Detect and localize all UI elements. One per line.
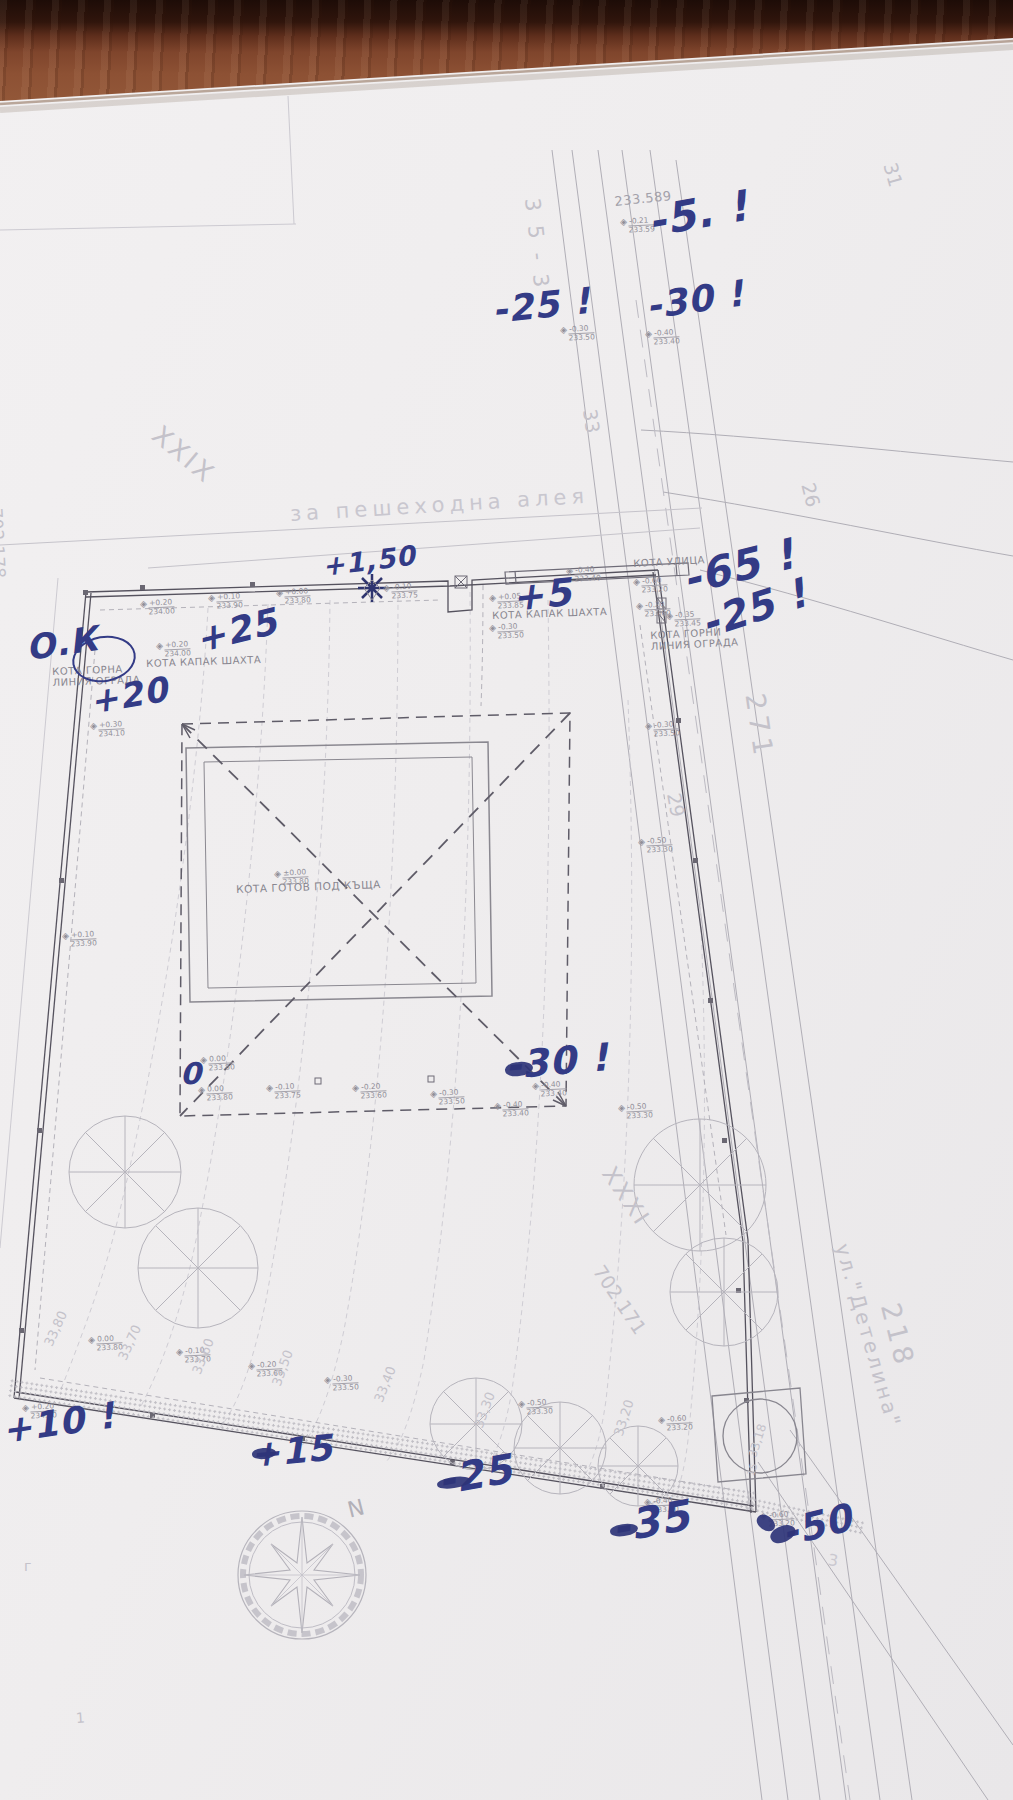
elevation-marker: ◈ -0.60 233.20 [658, 1414, 693, 1433]
shaft-symbols [315, 576, 666, 1084]
elevation-marker: ◈ -0.40 233.40 [494, 1100, 529, 1119]
elevation-marker: ◈ -0.30 233.50 [645, 720, 680, 739]
elevation-marker: ◈ -0.30 233.50 [324, 1374, 359, 1393]
absolute-elevation: 233.50 [438, 1097, 465, 1106]
benchmark-diamond-icon: ◈ [658, 1416, 665, 1425]
paper-edge [0, 41, 1013, 104]
absolute-elevation: 233.40 [574, 574, 601, 583]
faint-label: 29 [663, 791, 689, 819]
elevation-marker: ◈ -0.60 233.20 [633, 576, 668, 595]
absolute-elevation: 233.40 [653, 337, 680, 346]
ink-star-benchmark [358, 574, 386, 602]
absolute-elevation: 233.20 [666, 1423, 693, 1432]
benchmark-diamond-icon: ◈ [430, 1090, 437, 1099]
elevation-marker: ◈ -0.50 233.30 [638, 836, 673, 855]
elevation-marker: ◈ -0.50 233.30 [618, 1102, 653, 1121]
elevation-marker: ◈ -0.30 233.50 [560, 324, 595, 343]
benchmark-diamond-icon: ◈ [638, 838, 645, 847]
elevation-marker: ◈ +0.10 233.90 [62, 930, 97, 949]
benchmark-diamond-icon: ◈ [324, 1376, 331, 1385]
street-centerline [636, 300, 850, 1800]
absolute-elevation: 233.30 [626, 1111, 653, 1120]
absolute-elevation: 233.80 [206, 1093, 233, 1102]
benchmark-diamond-icon: ◈ [620, 218, 627, 227]
benchmark-diamond-icon: ◈ [276, 589, 283, 598]
benchmark-diamond-icon: ◈ [90, 722, 97, 731]
benchmark-diamond-icon: ◈ [383, 584, 390, 593]
benchmark-diamond-icon: ◈ [266, 1084, 273, 1093]
benchmark-diamond-icon: ◈ [274, 870, 281, 879]
elevation-marker: ◈ +0.20 234.00 [140, 598, 175, 617]
paper-edge-shadow [0, 47, 1013, 110]
absolute-elevation: 233.30 [526, 1407, 553, 1416]
benchmark-diamond-icon: ◈ [489, 624, 496, 633]
absolute-elevation: 233.50 [332, 1383, 359, 1392]
faint-label: 33 [579, 407, 604, 434]
elevation-marker: ◈ -0.30 233.50 [489, 622, 524, 641]
absolute-elevation: 233.30 [646, 845, 673, 854]
absolute-elevation: 233.80 [282, 877, 309, 886]
absolute-elevation: 234.00 [164, 649, 191, 658]
elevation-marker: ◈ ±0.00 233.80 [274, 868, 309, 887]
elevation-marker: ◈ -0.10 233.75 [383, 582, 418, 601]
benchmark-diamond-icon: ◈ [518, 1400, 525, 1409]
benchmark-diamond-icon: ◈ [618, 1104, 625, 1113]
elevation-marker: ◈ -0.40 233.40 [566, 565, 601, 584]
benchmark-diamond-icon: ◈ [156, 642, 163, 651]
absolute-elevation: 233.80 [284, 596, 311, 605]
photo-of-site-plan: 233.589 КОТА УЛИЦА КОТА КАПАК ШАХТА КОТА… [0, 0, 1013, 1800]
elevation-marker: ◈ +0.30 234.10 [90, 720, 125, 739]
street-lines [552, 150, 1013, 1800]
absolute-elevation: 233.50 [653, 729, 680, 738]
benchmark-diamond-icon: ◈ [88, 1336, 95, 1345]
benchmark-diamond-icon: ◈ [645, 722, 652, 731]
absolute-elevation: 233.50 [497, 631, 524, 640]
benchmark-diamond-icon: ◈ [208, 594, 215, 603]
absolute-elevation: 233.75 [274, 1091, 301, 1100]
absolute-elevation: 233.45 [674, 619, 701, 628]
absolute-elevation: 233.50 [568, 333, 595, 342]
elevation-marker: ◈ -0.50 233.30 [518, 1398, 553, 1417]
absolute-elevation: 233.80 [208, 1063, 235, 1072]
building-footprint [186, 742, 492, 1002]
elevation-marker: ◈ -0.40 233.40 [645, 328, 680, 347]
benchmark-diamond-icon: ◈ [666, 612, 673, 621]
absolute-elevation: 233.40 [502, 1109, 529, 1118]
handwritten-note: 0 [180, 1056, 202, 1091]
absolute-elevation: 233.40 [540, 1089, 567, 1098]
benchmark-diamond-icon: ◈ [140, 600, 147, 609]
elevation-marker: ◈ -0.10 233.75 [266, 1082, 301, 1101]
absolute-elevation: 234.00 [148, 607, 175, 616]
compass-rose [238, 1511, 366, 1639]
absolute-elevation: 233.60 [360, 1091, 387, 1100]
absolute-elevation: 233.75 [391, 591, 418, 600]
benchmark-diamond-icon: ◈ [636, 602, 643, 611]
elevation-marker: ◈ 0.00 233.80 [200, 1054, 235, 1073]
elevation-marker: ◈ -0.35 233.45 [666, 610, 701, 629]
benchmark-diamond-icon: ◈ [248, 1362, 255, 1371]
elevation-marker: ◈ -0.30 233.50 [430, 1088, 465, 1107]
benchmark-diamond-icon: ◈ [176, 1348, 183, 1357]
absolute-elevation: 234.10 [98, 729, 125, 738]
absolute-elevation: 233.90 [70, 939, 97, 948]
benchmark-diamond-icon: ◈ [489, 594, 496, 603]
faint-label: г [24, 1558, 31, 1574]
elevation-marker: ◈ -0.20 233.60 [352, 1082, 387, 1101]
benchmark-diamond-icon: ◈ [494, 1102, 501, 1111]
elevation-marker: ◈ 0.00 233.80 [198, 1084, 233, 1103]
absolute-elevation: 233.20 [641, 585, 668, 594]
benchmark-diamond-icon: ◈ [352, 1084, 359, 1093]
benchmark-diamond-icon: ◈ [62, 932, 69, 941]
benchmark-diamond-icon: ◈ [633, 578, 640, 587]
elevation-marker: ◈ +0.20 234.00 [156, 640, 191, 659]
elevation-marker: ◈ +0.00 233.80 [276, 587, 311, 606]
benchmark-diamond-icon: ◈ [645, 330, 652, 339]
faint-label: 1 [75, 1709, 85, 1726]
handwritten-note: +5 [510, 570, 575, 620]
site-plan-drawing: 233.589 КОТА УЛИЦА КОТА КАПАК ШАХТА КОТА… [0, 0, 1013, 1800]
benchmark-diamond-icon: ◈ [560, 326, 567, 335]
